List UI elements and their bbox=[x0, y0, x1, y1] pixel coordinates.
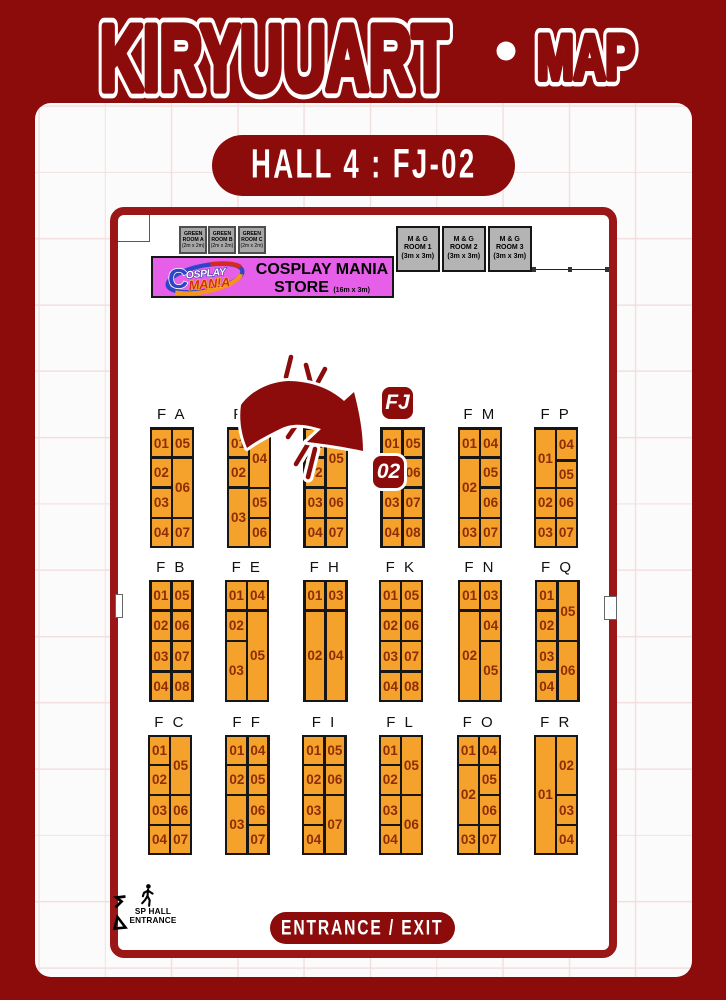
svg-text:KIRYUUART: KIRYUUART bbox=[100, 5, 448, 110]
svg-text:MAN!A: MAN!A bbox=[188, 274, 230, 293]
svg-text:MAP: MAP bbox=[537, 22, 635, 93]
